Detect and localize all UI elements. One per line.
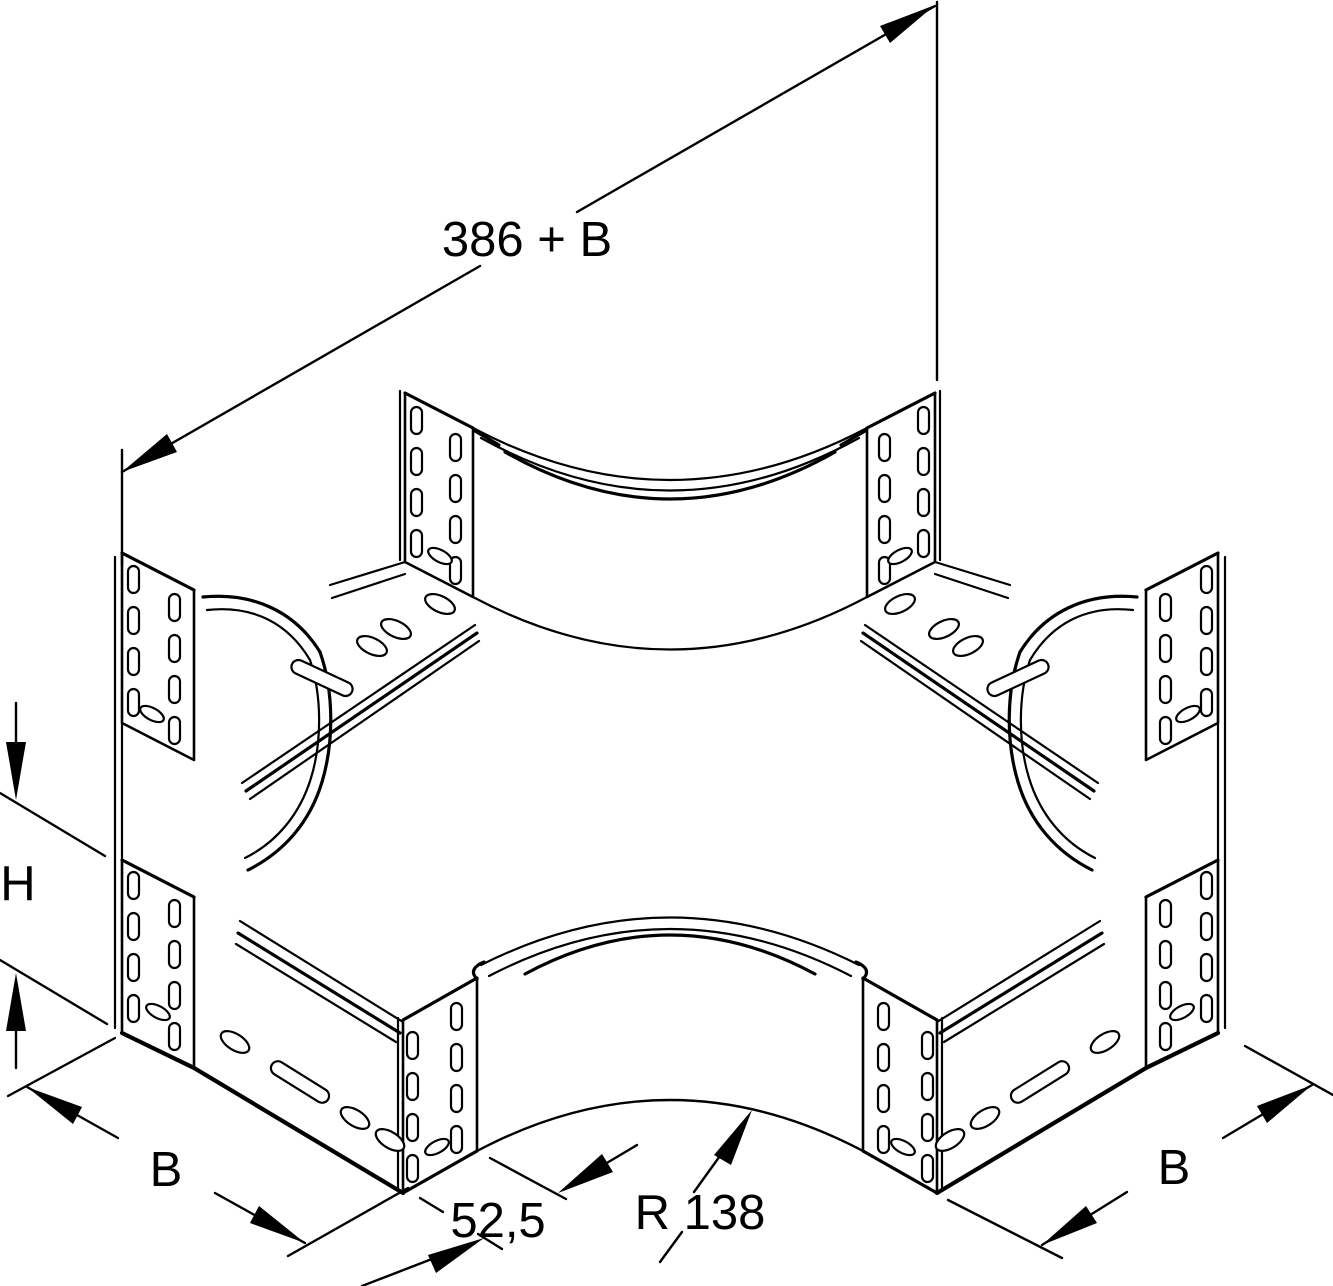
extension-line	[8, 1038, 115, 1096]
arrowhead	[122, 434, 177, 472]
dimension-corner-radius: R 138	[635, 1110, 766, 1262]
arrowhead	[6, 973, 26, 1031]
bottom-branch	[398, 918, 942, 1194]
arrowhead	[880, 5, 935, 43]
dim-label-width-right: B	[1158, 1141, 1191, 1195]
cable-tray-body	[115, 391, 1225, 1193]
dim-label-height: H	[0, 857, 35, 911]
cable-tray-cross-drawing: 386 + B H B B 52,5	[0, 0, 1333, 1286]
dimension-line	[577, 6, 935, 212]
extension-line	[288, 1188, 408, 1256]
arrowhead	[1042, 1206, 1097, 1245]
dim-label-corner-radius: R 138	[635, 1186, 766, 1240]
corner-wall-right	[1009, 596, 1137, 870]
extension-line	[0, 793, 105, 856]
dim-label-total-length: 386 + B	[442, 213, 612, 267]
top-branch	[400, 391, 940, 650]
extension-line	[490, 1158, 566, 1199]
arrowhead	[27, 1087, 82, 1124]
corner-wall-left	[203, 596, 331, 870]
extension-line	[1245, 1046, 1333, 1095]
dimension-width-left: B	[8, 1038, 408, 1256]
dim-label-corner-offset: 52,5	[450, 1194, 545, 1248]
dimension-height: H	[0, 703, 107, 1068]
arrowhead	[1257, 1085, 1312, 1123]
dim-label-width-left: B	[150, 1143, 183, 1197]
right-branch	[1146, 553, 1225, 1067]
arrowhead	[6, 742, 26, 800]
extension-line	[420, 1198, 443, 1212]
arrowhead	[558, 1154, 613, 1193]
perforation-slots	[128, 407, 1212, 1182]
drawing-canvas: 386 + B H B B 52,5	[0, 0, 1333, 1286]
dimension-total-length: 386 + B	[122, 2, 937, 565]
left-branch	[115, 553, 194, 1067]
floor-rims	[236, 562, 1104, 1042]
extension-line	[948, 1200, 1062, 1258]
arrowhead	[250, 1206, 305, 1243]
arrowhead	[714, 1110, 752, 1165]
radius-arc	[477, 1100, 863, 1151]
rail-perforations	[217, 590, 1123, 1155]
